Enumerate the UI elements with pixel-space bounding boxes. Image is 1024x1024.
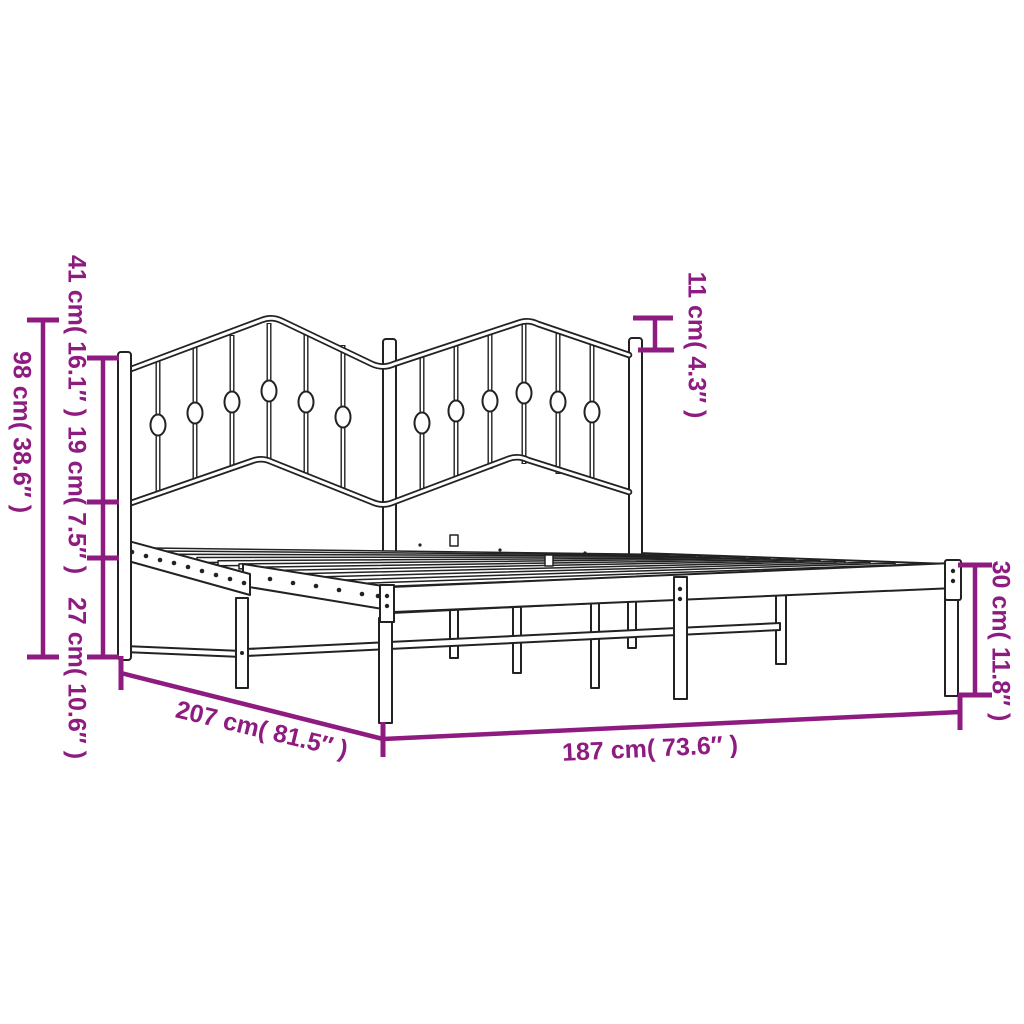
dim-headboard-lower-label: 19 cm( 7.5″ )	[62, 426, 90, 574]
headboard-bottom-rail	[131, 457, 629, 504]
left-lower-brace	[124, 646, 242, 657]
dim-total-height-label: 98 cm( 38.6″ )	[7, 351, 35, 513]
dim-inner-length-label: 187 cm( 73.6″ )	[561, 731, 738, 767]
headboard	[118, 318, 629, 660]
headboard-center-post	[383, 339, 396, 553]
dim-peak-label: 11 cm( 4.3″ )	[682, 272, 710, 419]
near-corner-leg	[379, 618, 392, 723]
slat-clip	[545, 555, 553, 566]
headboard-near-post	[118, 352, 131, 660]
headboard-beads	[151, 381, 600, 436]
headboard-top-rail	[131, 318, 629, 369]
headboard-far-post	[629, 338, 642, 556]
bed-frame-drawing	[118, 318, 961, 723]
dim-total-length-label: 207 cm( 81.5″ )	[173, 696, 351, 764]
dim-ground-clearance-label: 27 cm( 10.6″ )	[62, 597, 90, 759]
slat-clip	[450, 535, 458, 546]
dimension-annotations	[27, 318, 992, 757]
left-mid-leg	[236, 598, 248, 688]
foot-center-leg	[674, 577, 687, 699]
dim-headboard-upper-label: 41 cm( 16.1″ )	[62, 255, 90, 417]
dim-rail-height-label: 30 cm( 11.8″ )	[986, 561, 1014, 722]
dimension-height-segments	[87, 358, 119, 657]
side-rail-strip-1	[121, 539, 250, 595]
dimension-inner-length	[383, 696, 960, 739]
corner-bracket-near	[380, 585, 394, 622]
product-dimension-diagram: 98 cm( 38.6″ ) 41 cm( 16.1″ ) 19 cm( 7.5…	[0, 0, 1024, 1024]
bed-frame-diagram-svg: 98 cm( 38.6″ ) 41 cm( 16.1″ ) 19 cm( 7.5…	[0, 0, 1024, 1024]
dimension-labels: 98 cm( 38.6″ ) 41 cm( 16.1″ ) 19 cm( 7.5…	[7, 255, 1014, 767]
far-leg	[591, 598, 599, 688]
right-corner-leg	[945, 597, 958, 696]
